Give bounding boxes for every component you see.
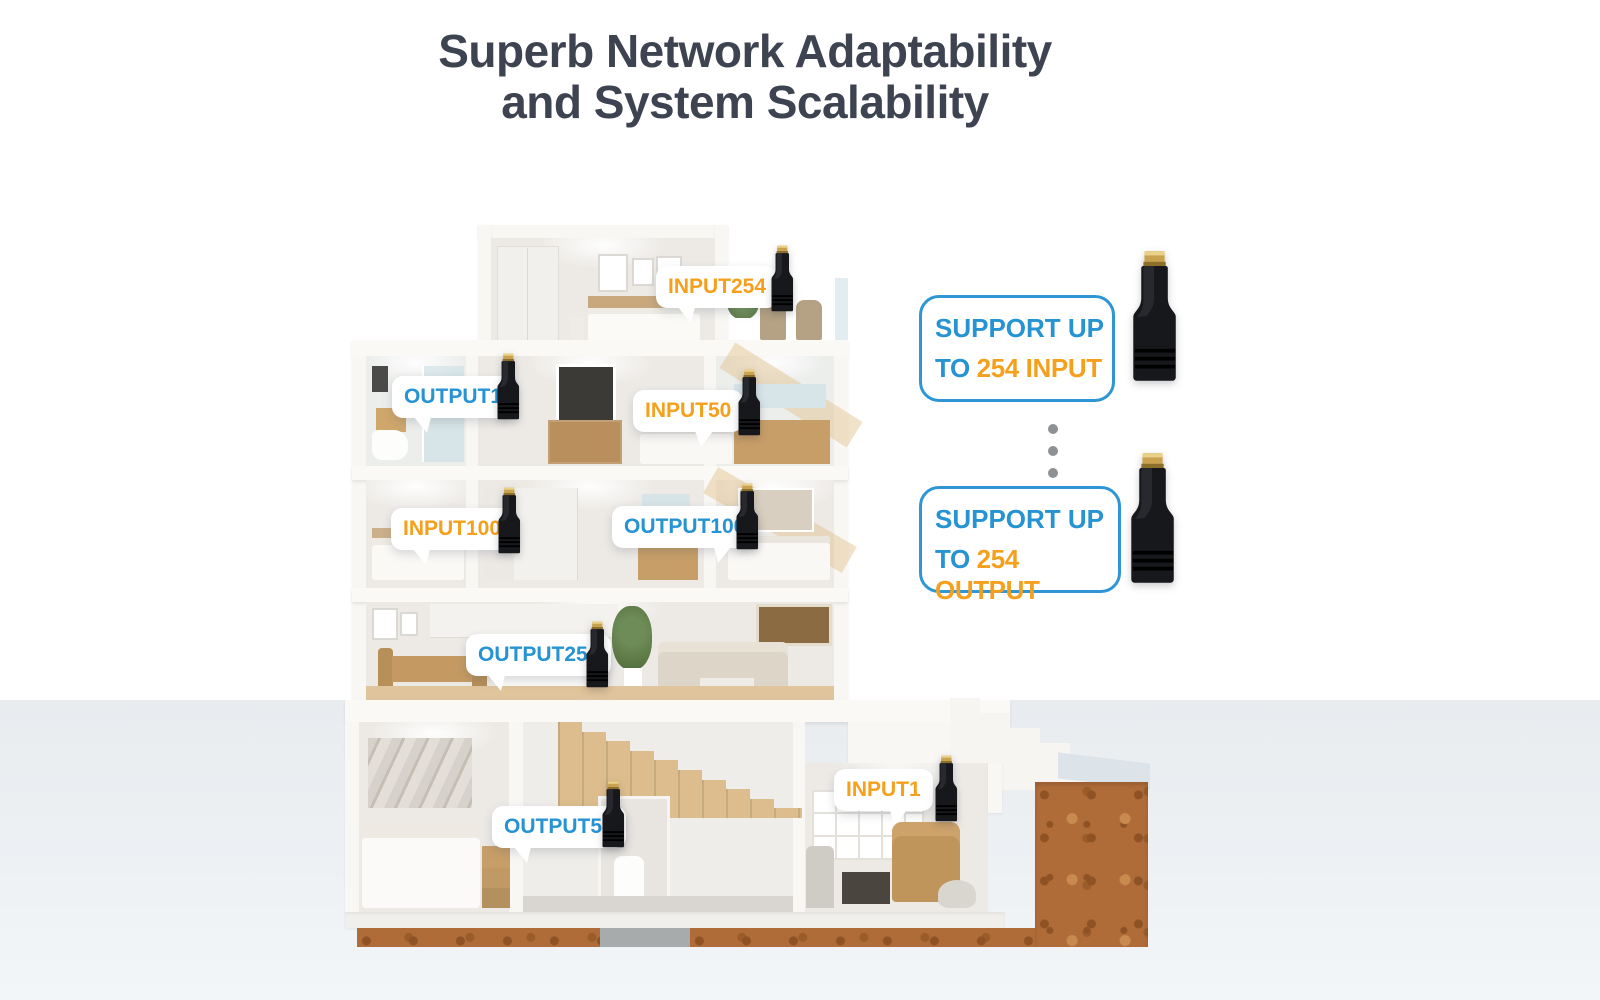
label-text: INPUT50 [645, 399, 731, 422]
support-input-prefix: TO [935, 353, 977, 383]
support-input-line1: SUPPORT UP [935, 313, 1112, 344]
dining-table [392, 656, 474, 682]
page-canvas: Superb Network Adaptability and System S… [0, 0, 1600, 1000]
hdmi-extender-icon [764, 244, 800, 314]
wall-art [756, 604, 832, 646]
hdmi-extender-icon [731, 368, 767, 438]
roof-5f [478, 225, 728, 238]
houseplant [612, 606, 652, 670]
support-output-box: SUPPORT UP TO 254 OUTPUT [919, 486, 1121, 593]
support-input-highlight: 254 INPUT [977, 353, 1102, 383]
picture-frame [372, 608, 398, 640]
label-text: INPUT100 [403, 517, 501, 540]
pouf [938, 880, 976, 908]
concrete-strip [600, 928, 690, 947]
support-input-line2: TO 254 INPUT [935, 353, 1112, 384]
label-input50: INPUT50 [633, 390, 743, 432]
sideboard [548, 420, 622, 464]
small-sofa [806, 846, 834, 908]
support-output-line2: TO 254 OUTPUT [935, 544, 1118, 606]
support-output-line1: SUPPORT UP [935, 504, 1118, 535]
soil-strip-left [357, 928, 600, 947]
slab-4f-floor [352, 466, 848, 480]
picture-frame [598, 254, 628, 292]
label-text: INPUT254 [668, 275, 766, 298]
plant-pot [735, 318, 751, 338]
dining-chair [378, 648, 393, 686]
slab-2f-floor [345, 700, 1010, 722]
hdmi-extender-icon [490, 352, 526, 422]
support-input-box: SUPPORT UP TO 254 INPUT [919, 295, 1115, 402]
bathroom-mirror [372, 366, 388, 392]
nightstand [482, 846, 510, 908]
wall-art [368, 738, 472, 808]
wardrobe-door-line [527, 248, 528, 342]
wall-1f-right [988, 763, 1002, 813]
picture-frame [400, 612, 418, 636]
slab-5f-floor [352, 340, 848, 356]
floor-base-band [345, 912, 1005, 928]
label-text: INPUT1 [846, 778, 921, 801]
house-cutaway-illustration [0, 0, 1600, 1000]
hdmi-extender-icon [595, 780, 631, 850]
hdmi-extender-icon [729, 482, 765, 552]
nightstand [570, 318, 584, 342]
hdmi-extender-icon-large [1122, 248, 1186, 386]
wall-5f-left [478, 225, 491, 352]
support-output-prefix: TO [935, 544, 977, 574]
wall-art [556, 364, 616, 426]
picture-frame [632, 258, 654, 286]
vertical-ellipsis-icon [1048, 424, 1058, 490]
bed [362, 824, 480, 908]
label-input1: INPUT1 [834, 769, 933, 811]
label-text: OUTPUT1 [404, 385, 502, 408]
wall-left [352, 356, 366, 702]
hdmi-extender-icon-large [1120, 450, 1184, 588]
label-input254: INPUT254 [656, 266, 778, 308]
slab-3f-floor [352, 588, 848, 602]
coffee-table [842, 872, 890, 904]
label-text: OUTPUT100 [624, 515, 745, 538]
soil-strip-right [690, 928, 1035, 947]
wardrobe [497, 246, 559, 346]
soil-block-right [1035, 782, 1148, 947]
hdmi-extender-icon [928, 754, 964, 824]
hall-floor [523, 896, 793, 912]
toilet [372, 430, 408, 460]
bed [640, 428, 732, 464]
hdmi-extender-icon [579, 620, 615, 690]
wall-1f-left [345, 722, 359, 928]
hdmi-extender-icon [491, 486, 527, 556]
